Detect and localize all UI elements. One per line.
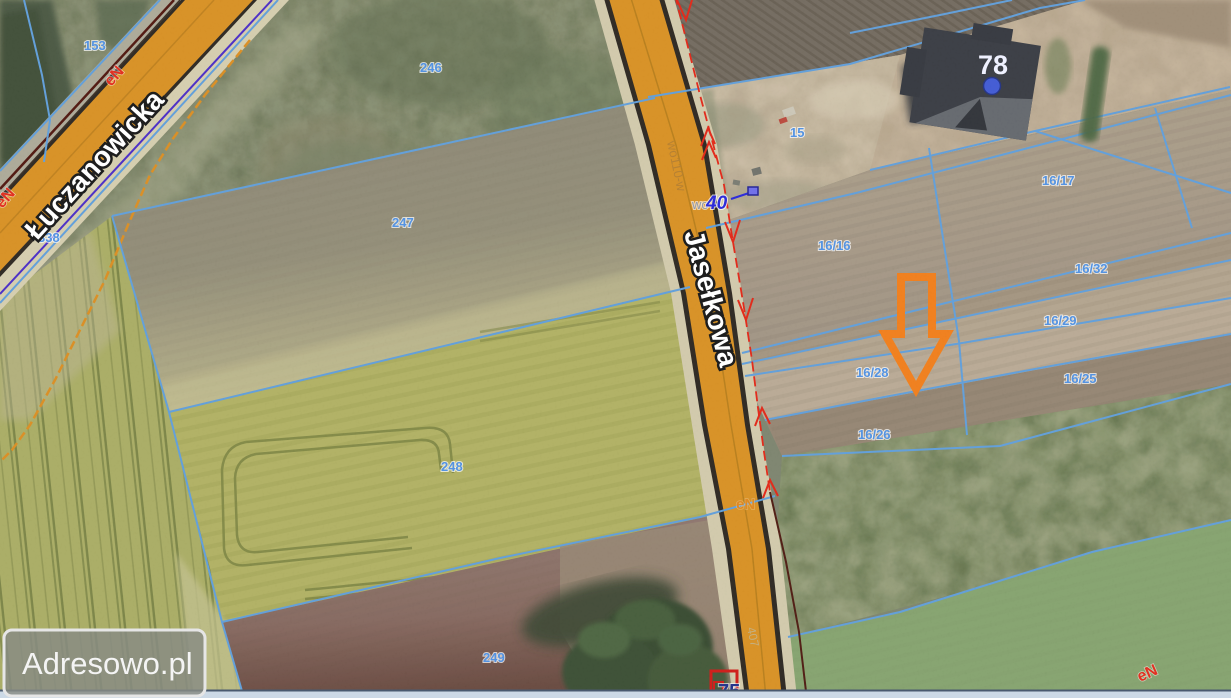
svg-text:Adresowo.pl: Adresowo.pl — [22, 646, 193, 681]
